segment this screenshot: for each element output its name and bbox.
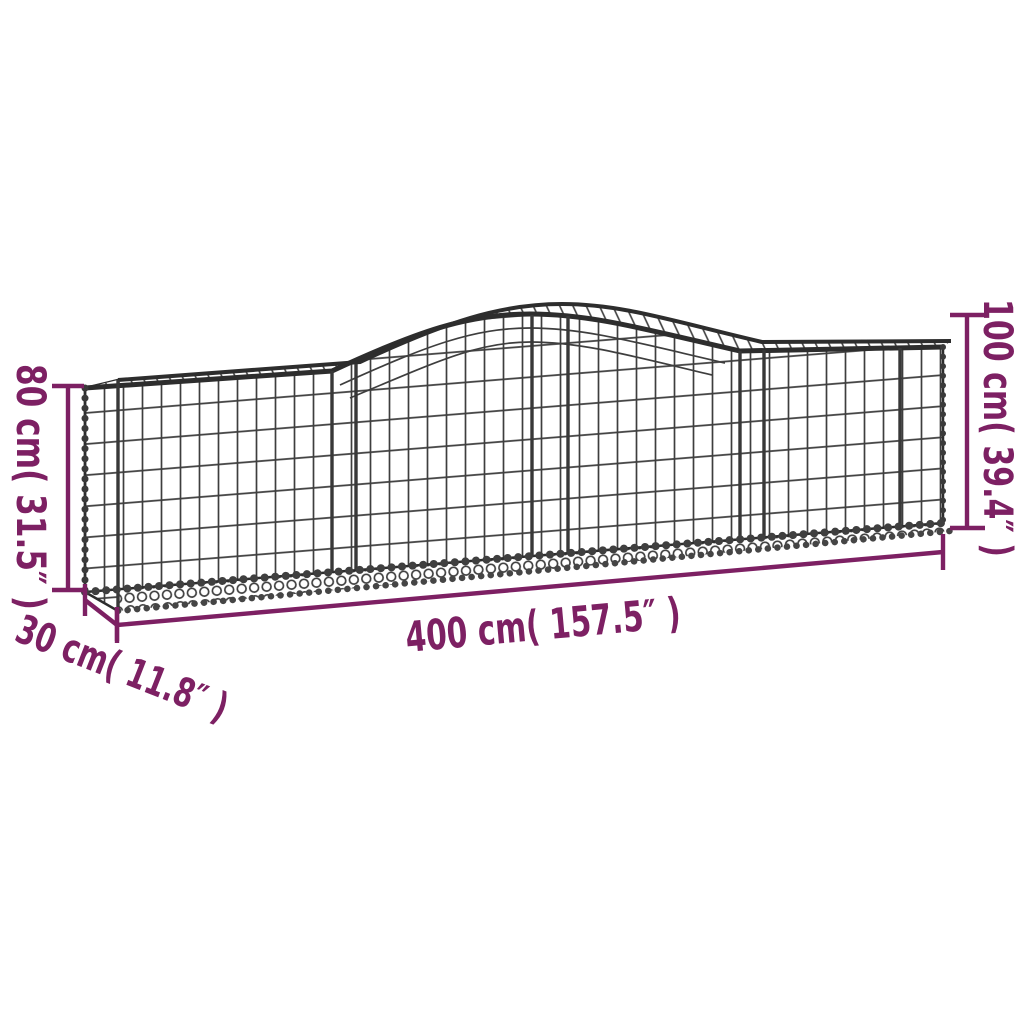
basket-front-face <box>85 314 943 592</box>
front-face-horizontal-wires <box>85 314 943 592</box>
height-left-label: 80 cm( 31.5″ ) <box>7 364 53 610</box>
height-right-label: 100 cm( 39.4″ ) <box>974 299 1020 557</box>
length-label: 400 cm( 157.5″ ) <box>403 588 682 662</box>
height-left-dimension: 80 cm( 31.5″ ) <box>7 364 84 610</box>
product-diagram: 80 cm( 31.5″ ) 100 cm( 39.4″ ) 400 cm( 1… <box>0 0 1024 1024</box>
height-right-dimension: 100 cm( 39.4″ ) <box>950 299 1020 557</box>
diagram-canvas: 80 cm( 31.5″ ) 100 cm( 39.4″ ) 400 cm( 1… <box>0 0 1024 1024</box>
